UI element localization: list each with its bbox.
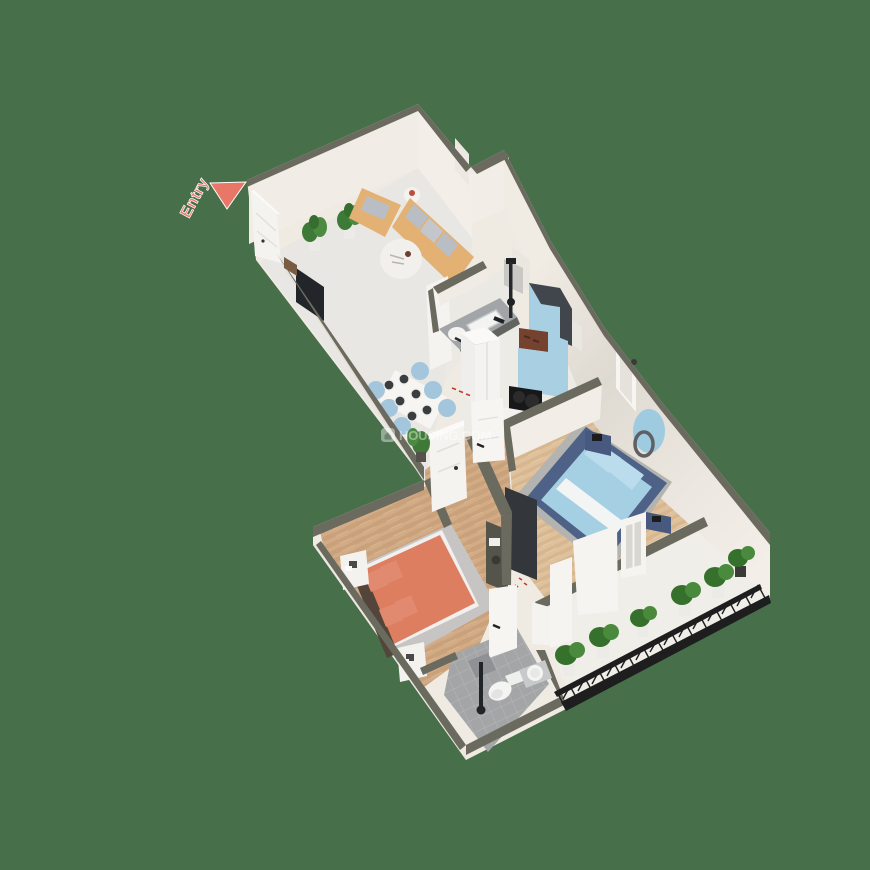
svg-text:HOUSING.COM: HOUSING.COM <box>399 428 491 443</box>
